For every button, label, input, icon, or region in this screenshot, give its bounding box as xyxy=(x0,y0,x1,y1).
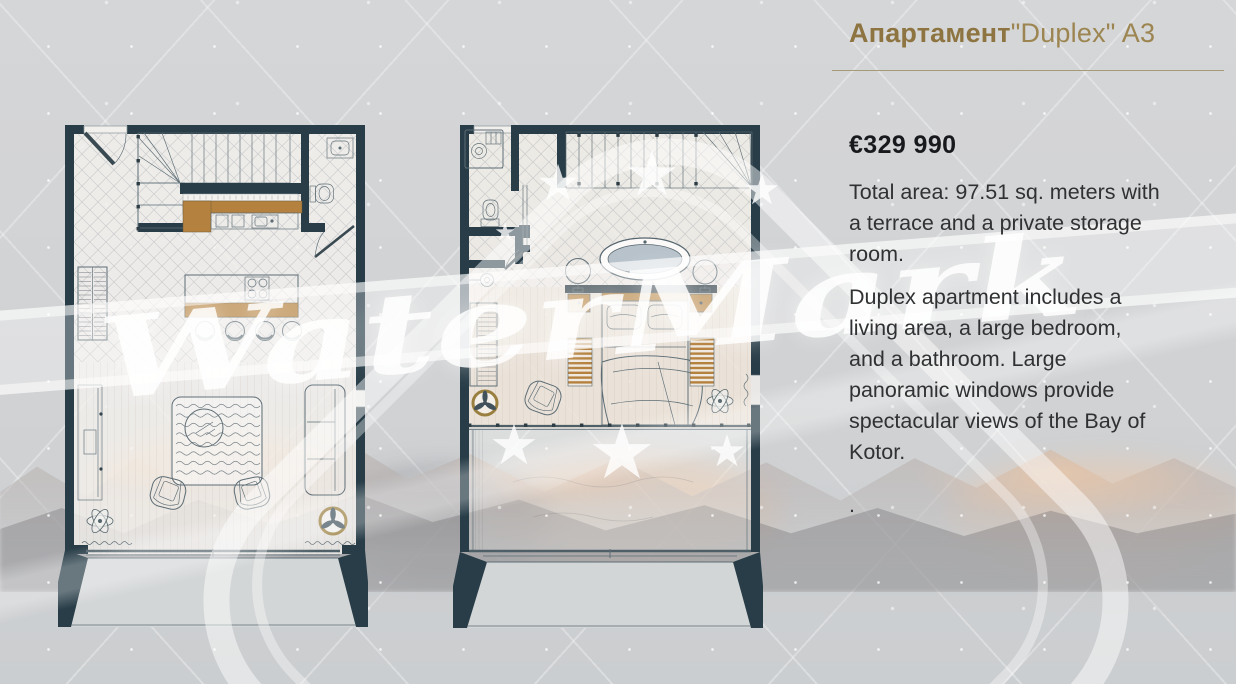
living-rug xyxy=(172,397,262,485)
wardrobe-unit xyxy=(78,267,107,340)
bedside-rug xyxy=(568,338,592,386)
area-paragraph: Total area: 97.51 sq. meters with a terr… xyxy=(849,177,1225,270)
text-line: room. xyxy=(849,239,1225,270)
text-line: Duplex apartment includes a xyxy=(849,282,1225,313)
text-line: Total area: 97.51 sq. meters with xyxy=(849,177,1225,208)
text-line: and a bathroom. Large xyxy=(849,344,1225,375)
text-line: panoramic windows provide xyxy=(849,375,1225,406)
nightstand xyxy=(568,294,590,312)
floor-plan-lower-level xyxy=(58,122,368,634)
upper-terrace-void xyxy=(469,430,751,550)
text-line: a terrace and a private storage xyxy=(849,208,1225,239)
description-paragraph: Duplex apartment includes a living area,… xyxy=(849,282,1225,468)
terrace xyxy=(58,550,368,627)
title-secondary: "Duplex" A3 xyxy=(1011,18,1155,48)
title-primary: Апартамент xyxy=(849,18,1011,48)
text-line: living area, a large bedroom, xyxy=(849,313,1225,344)
nightstand xyxy=(690,294,712,312)
bathtub xyxy=(600,238,690,280)
brochure-page: ★ ★ ★ ★ ★ ★ ★ WaterMark Апартамент"Duple… xyxy=(0,0,1236,684)
price: €329 990 xyxy=(849,131,1225,160)
page-title: Апартамент"Duplex" A3 xyxy=(849,16,1225,50)
listing-info: Апартамент"Duplex" A3 €329 990 Total are… xyxy=(849,16,1225,518)
terrace xyxy=(453,552,763,628)
sliding-window xyxy=(469,549,751,558)
floor-plan-upper-level xyxy=(453,122,765,634)
vanity-counter xyxy=(565,285,717,293)
title-divider xyxy=(832,70,1224,71)
ceiling-fan xyxy=(320,508,346,535)
text-line: Kotor. xyxy=(849,437,1225,468)
footnote-dot: . xyxy=(849,493,1225,518)
text-line: spectacular views of the Bay of xyxy=(849,406,1225,437)
bedside-rug xyxy=(690,338,714,386)
ceiling-fan xyxy=(473,391,497,416)
